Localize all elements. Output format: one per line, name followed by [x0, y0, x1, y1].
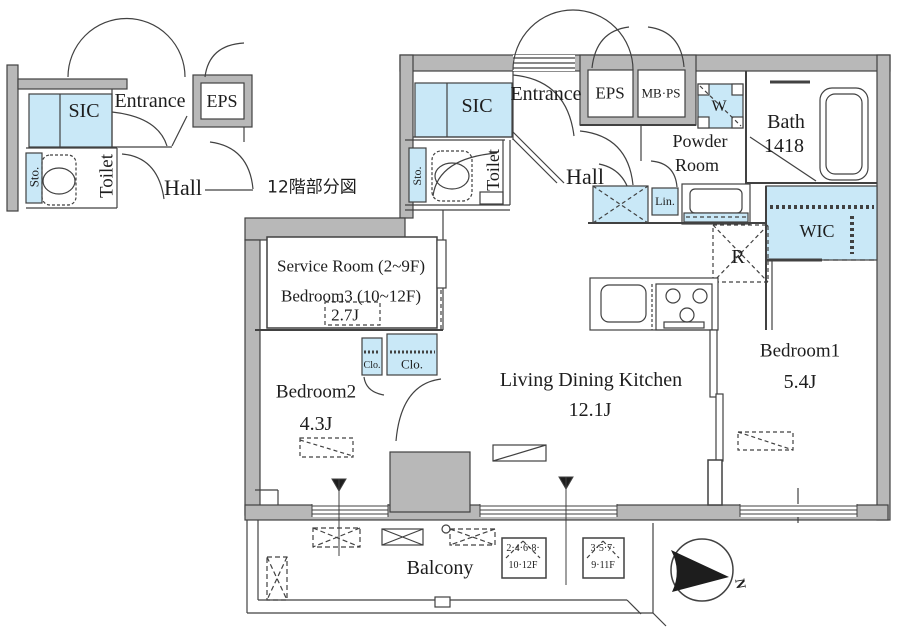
sliding-door-panel [437, 240, 446, 288]
inset-plan [7, 18, 253, 211]
inset-toilet-icon [42, 155, 76, 205]
linen-cabinet [652, 188, 678, 215]
window-ldk [480, 504, 617, 517]
evacuation-hatch-2 [583, 538, 624, 578]
sliding-partition [708, 330, 723, 505]
main-toilet-door-arc [433, 153, 497, 196]
window-bedroom1 [740, 504, 857, 517]
balcony-unit-solid [382, 529, 423, 545]
closet-small [362, 338, 382, 375]
fridge-space [713, 225, 768, 282]
drain-mark [442, 525, 450, 533]
overhead-cabinet [593, 186, 648, 223]
evacuation-hatch-1 [502, 538, 546, 578]
tv-board-symbol [493, 445, 546, 461]
main-entrance-door-arc [513, 75, 574, 136]
balcony-partition [267, 557, 287, 600]
inset-toilet-door-arc [122, 154, 164, 199]
closet-large [387, 334, 437, 375]
inset-hall-door-arc [210, 142, 253, 189]
balcony-unit-dashed-1 [313, 528, 360, 547]
balcony-divider [435, 597, 450, 607]
floor-plan: SIC Entrance EPS Sto. Toilet Hall 12階部分図… [0, 0, 900, 632]
bedroom2-door-arc [396, 379, 441, 441]
inset-eps-door-arc [205, 43, 244, 77]
washbasin-icon [682, 184, 750, 224]
compass-icon [671, 539, 733, 601]
washer-pan-icon [698, 84, 743, 128]
bed-symbol-b1 [738, 432, 793, 450]
balcony-unit-dashed-2 [450, 529, 495, 545]
balcony-area [247, 520, 666, 626]
inset-front-door-arc [68, 18, 185, 77]
service-room-area [267, 237, 446, 330]
hall-door-arc-1 [580, 131, 633, 185]
inset-entrance-door-arc [112, 112, 167, 146]
sic-area [415, 83, 512, 137]
floor-plan-drawing [0, 0, 900, 632]
sto-area [409, 148, 426, 202]
bathtub-icon [820, 88, 868, 180]
window-bedroom2 [312, 504, 388, 517]
ldk-area [493, 330, 723, 505]
bed-symbol [300, 438, 353, 457]
bath-door [750, 137, 816, 181]
pillar [390, 452, 470, 512]
kitchen-area [590, 225, 768, 330]
powder-door-arc [651, 161, 677, 187]
closet-door-arc [364, 377, 384, 395]
wic-area [766, 186, 877, 330]
